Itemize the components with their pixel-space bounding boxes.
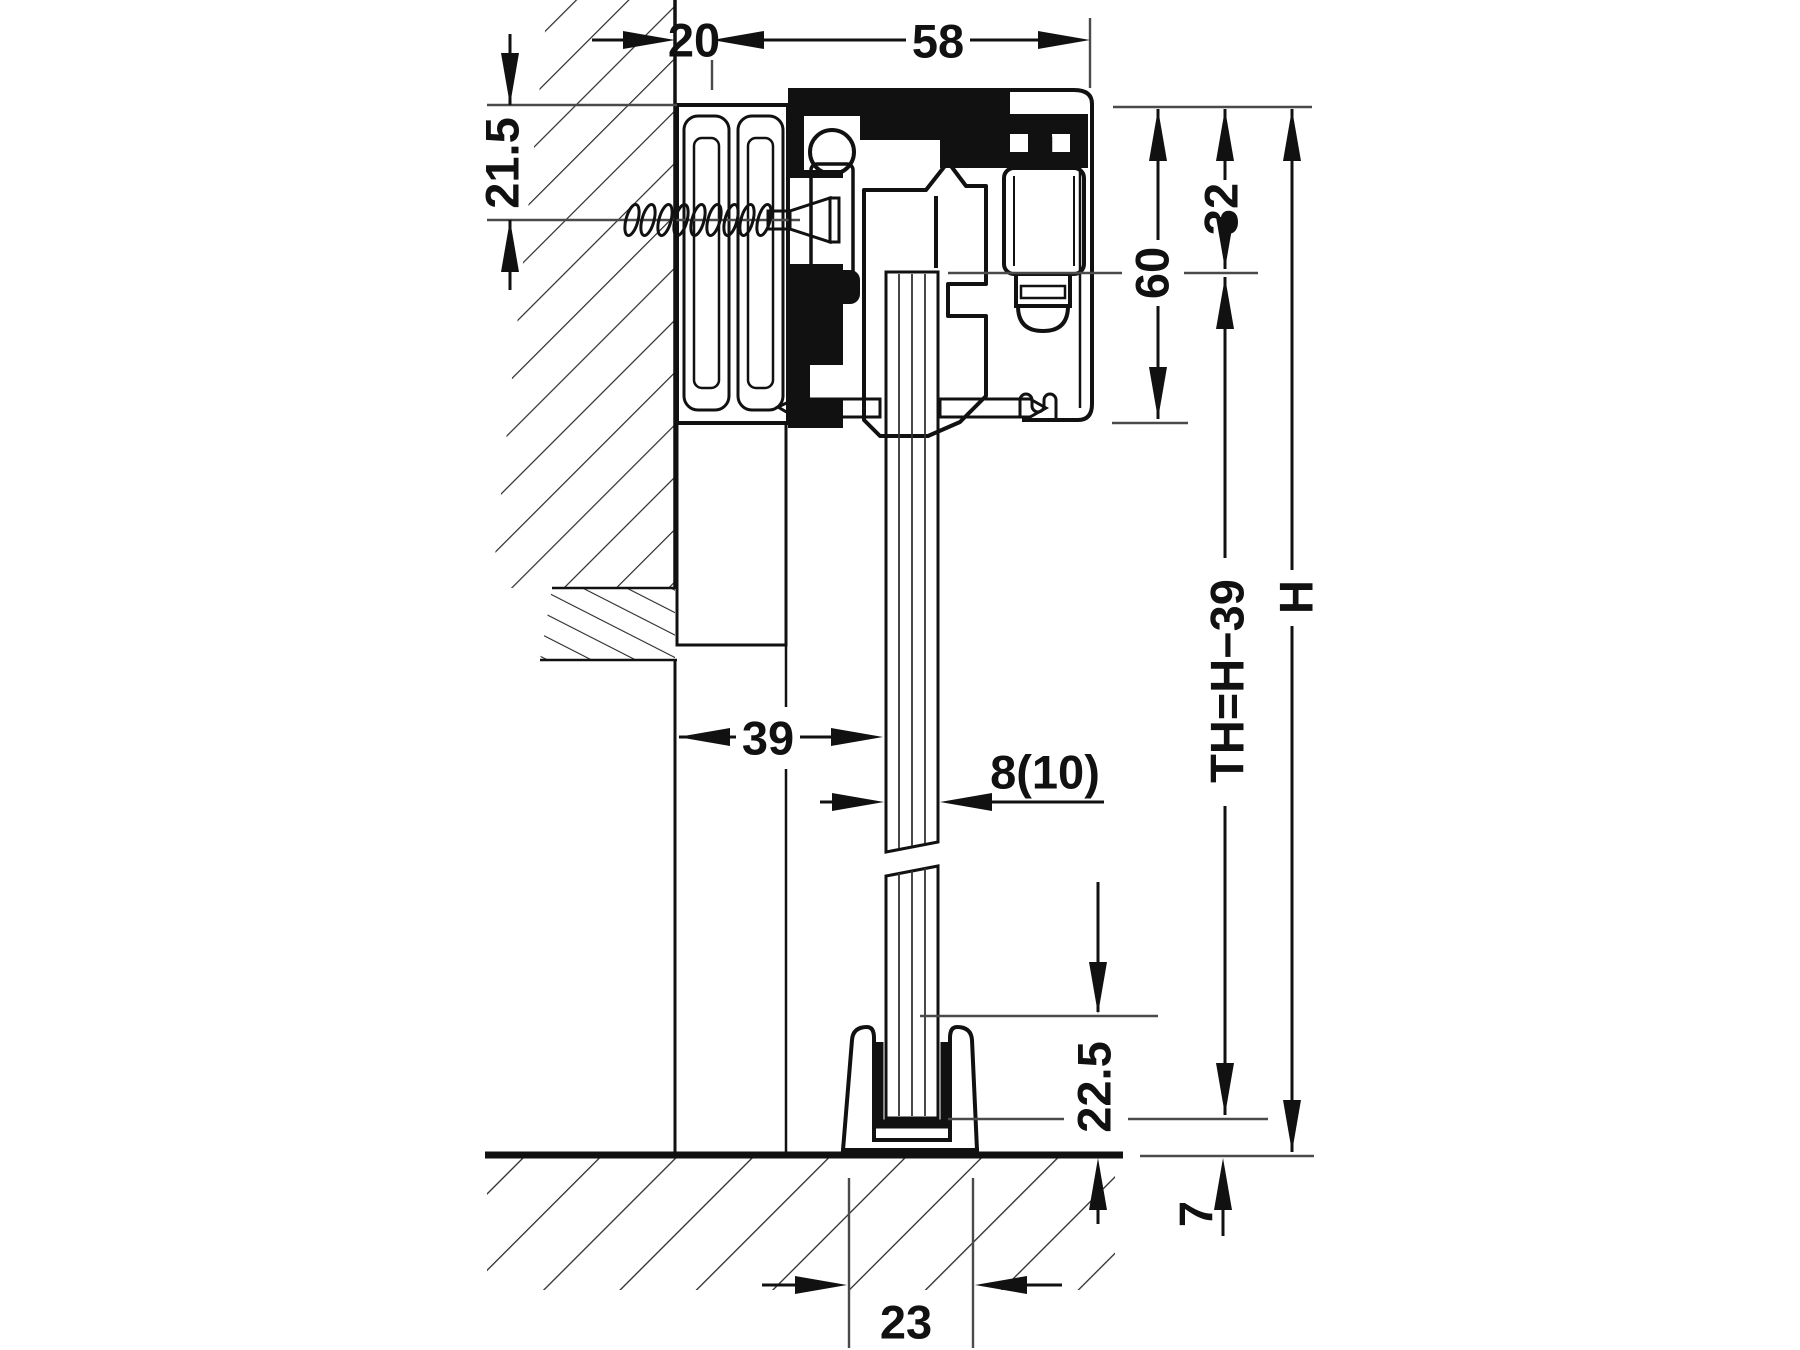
dim-floor-guide-width: 23 <box>880 1296 932 1349</box>
dim-track-width: 58 <box>912 15 964 68</box>
screw-head-face <box>830 198 839 242</box>
dim-track-top-to-hanger: 32 <box>1195 183 1248 235</box>
retainer-strip-right <box>940 399 1046 417</box>
dim-screw-axis-offset: 21.5 <box>476 117 529 208</box>
adjuster-screw-neck <box>1016 274 1070 306</box>
adjuster-housing <box>1004 168 1084 274</box>
adjuster-screw-dome <box>1018 306 1068 331</box>
dim-glass-thickness: 8(10) <box>990 746 1100 799</box>
floor-section <box>485 1155 1123 1290</box>
batten-hatch <box>677 423 786 645</box>
wall-hatch <box>492 0 675 588</box>
dim-wall-to-glass: 39 <box>742 712 794 765</box>
clip-window-left <box>1010 134 1028 152</box>
dim-door-height-formula: TH=H−39 <box>1201 579 1254 783</box>
dim-glass-bottom-to-floor: 7 <box>1170 1201 1223 1227</box>
cross-section-drawing: 20 58 21.5 39 8(10) 60 32 TH=H−39 H 22.5… <box>0 0 1800 1350</box>
floor-guide <box>841 1027 979 1151</box>
dim-floor-guide-height: 22.5 <box>1068 1041 1121 1132</box>
floor-hatch <box>487 1158 1115 1290</box>
dim-track-height: 60 <box>1126 247 1179 299</box>
glass-stripes <box>899 274 925 1116</box>
mounting-batten <box>677 423 786 1152</box>
glass-panel <box>886 272 938 1118</box>
lintel-hatch <box>540 588 675 660</box>
guide-channel-body <box>843 1027 977 1150</box>
spacer-core-right <box>748 138 773 388</box>
wall-spacer-profile <box>677 105 788 423</box>
dim-total-height: H <box>1270 580 1323 614</box>
adjuster-screw-slot <box>1021 286 1065 298</box>
height-adjuster <box>1004 168 1084 331</box>
spacer-slot-left <box>684 116 729 410</box>
clip-window-right <box>1052 134 1070 152</box>
technical-drawing-page: 20 58 21.5 39 8(10) 60 32 TH=H−39 H 22.5… <box>0 0 1800 1350</box>
wheel-axle-block <box>808 270 860 304</box>
dim-wall-to-track: 20 <box>668 14 720 67</box>
spacer-core-left <box>694 138 719 388</box>
spacer-slot-right <box>738 116 783 410</box>
